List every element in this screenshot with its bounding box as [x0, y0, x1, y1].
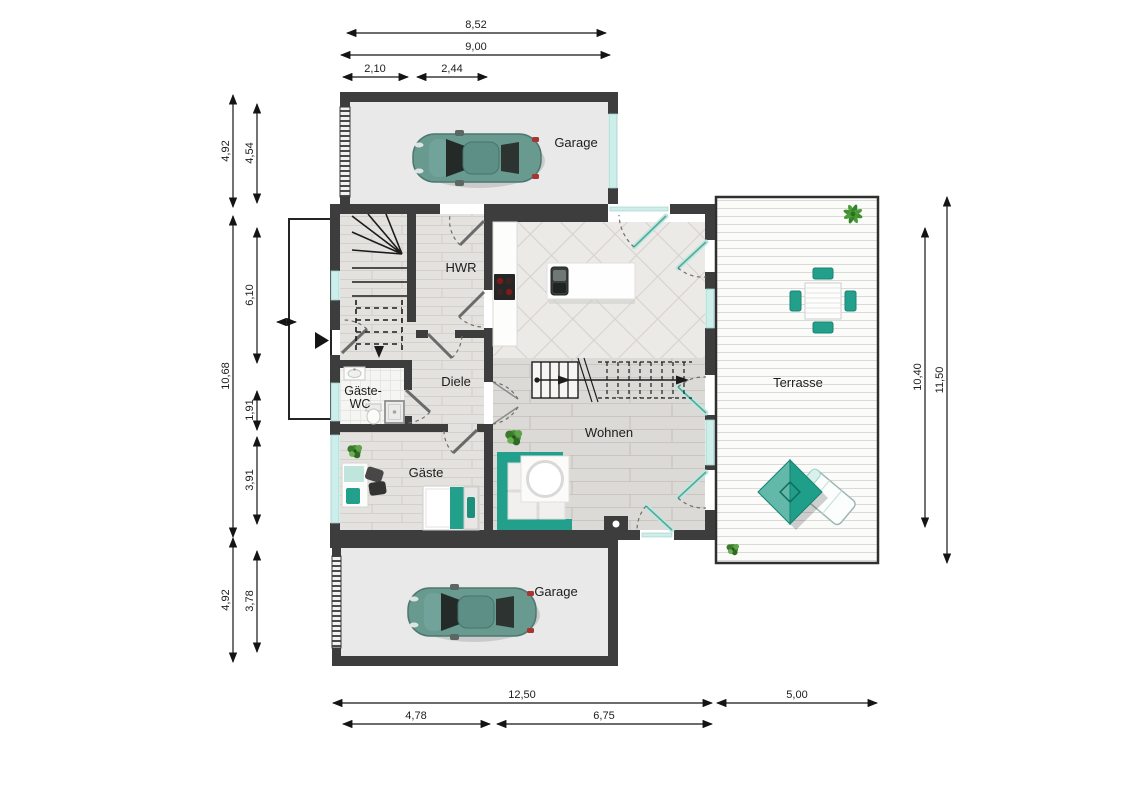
coffee-table	[521, 456, 569, 502]
room-label-garage-top: Garage	[554, 135, 597, 150]
dim-label: 9,00	[465, 41, 486, 53]
window-right-living	[705, 415, 715, 470]
dim-label: 4,92	[220, 589, 232, 610]
dim-label: 10,68	[220, 362, 232, 390]
wc-sink	[344, 367, 365, 380]
window-left-wc	[330, 380, 340, 424]
window-left-hall	[330, 268, 340, 303]
room-label-wohnen: Wohnen	[585, 425, 633, 440]
garage-top-door	[340, 107, 350, 197]
window-garage-right	[608, 110, 618, 192]
dim-label: 4,54	[244, 142, 256, 163]
room-label-diele: Diele	[441, 374, 471, 389]
cooktop	[494, 274, 515, 300]
car-top-view	[413, 130, 545, 188]
dim-label: 2,44	[441, 63, 462, 75]
dim-label: 12,50	[508, 689, 536, 701]
dim-label: 4,92	[220, 140, 232, 161]
porch-outline	[289, 219, 331, 419]
dim-label: 11,50	[934, 367, 946, 394]
dim-label: 3,78	[244, 590, 256, 611]
dim-label: 5,00	[786, 689, 807, 701]
room-label-gaeste-wc-2: WC	[350, 397, 371, 411]
wc-shower	[385, 401, 404, 423]
room-label-gaeste-wc-1: Gäste-	[344, 384, 382, 398]
floor-plan-page: Garage HWR Diele Gäste- WC Gäste Wohnen …	[0, 0, 1138, 804]
window-right-kitchen	[705, 285, 715, 332]
dim-label: 3,91	[244, 469, 256, 490]
dim-label: 8,52	[465, 19, 486, 31]
floor-plan-drawing: Garage HWR Diele Gäste- WC Gäste Wohnen …	[0, 0, 1138, 804]
garage-bottom-door	[332, 556, 341, 648]
island-sink	[551, 267, 568, 295]
dim-label: 1,91	[244, 399, 256, 420]
room-label-garage-bottom: Garage	[534, 584, 577, 599]
kitchen-island	[547, 263, 635, 304]
car-top-view	[408, 584, 540, 642]
window-left-guest	[330, 432, 340, 526]
entrance-porch	[277, 219, 331, 419]
glass-top-threshold	[610, 207, 668, 211]
dim-label: 2,10	[364, 63, 385, 75]
dim-label: 4,78	[405, 710, 426, 722]
pillar-dot	[613, 521, 620, 528]
guest-bed	[423, 486, 479, 530]
room-label-gaeste: Gäste	[409, 465, 444, 480]
guest-desk	[342, 463, 368, 507]
room-label-hwr: HWR	[445, 260, 476, 275]
room-label-terrasse: Terrasse	[773, 375, 823, 390]
dim-label: 6,75	[593, 710, 614, 722]
glass-bottom-threshold	[642, 533, 672, 537]
dim-label: 6,10	[244, 284, 256, 305]
dim-label: 10,40	[912, 363, 924, 391]
